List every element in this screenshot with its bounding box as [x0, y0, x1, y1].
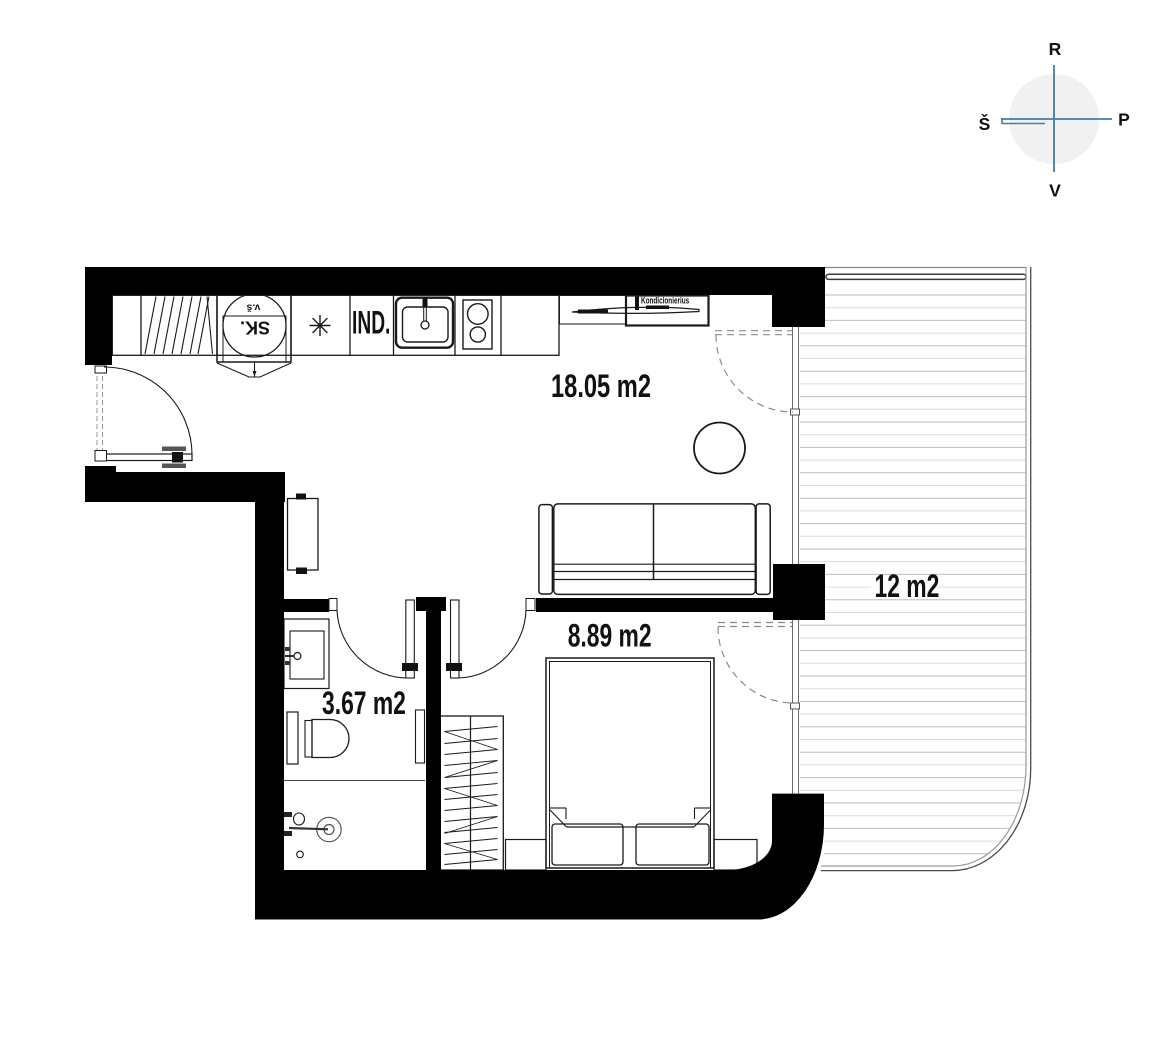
svg-text:v.š: v.š	[246, 301, 260, 313]
svg-text:Kondicionierius: Kondicionierius	[641, 295, 690, 305]
svg-text:12 m2: 12 m2	[875, 568, 940, 604]
svg-text:V: V	[1049, 181, 1061, 201]
svg-text:P: P	[1118, 109, 1130, 129]
svg-text:3.67 m2: 3.67 m2	[322, 685, 406, 721]
svg-text:Š: Š	[979, 113, 991, 134]
svg-text:18.05 m2: 18.05 m2	[551, 369, 651, 404]
svg-text:R: R	[1049, 39, 1062, 59]
svg-text:IND.: IND.	[352, 304, 390, 340]
svg-text:SK.: SK.	[240, 317, 270, 337]
svg-text:8.89 m2: 8.89 m2	[568, 618, 652, 654]
